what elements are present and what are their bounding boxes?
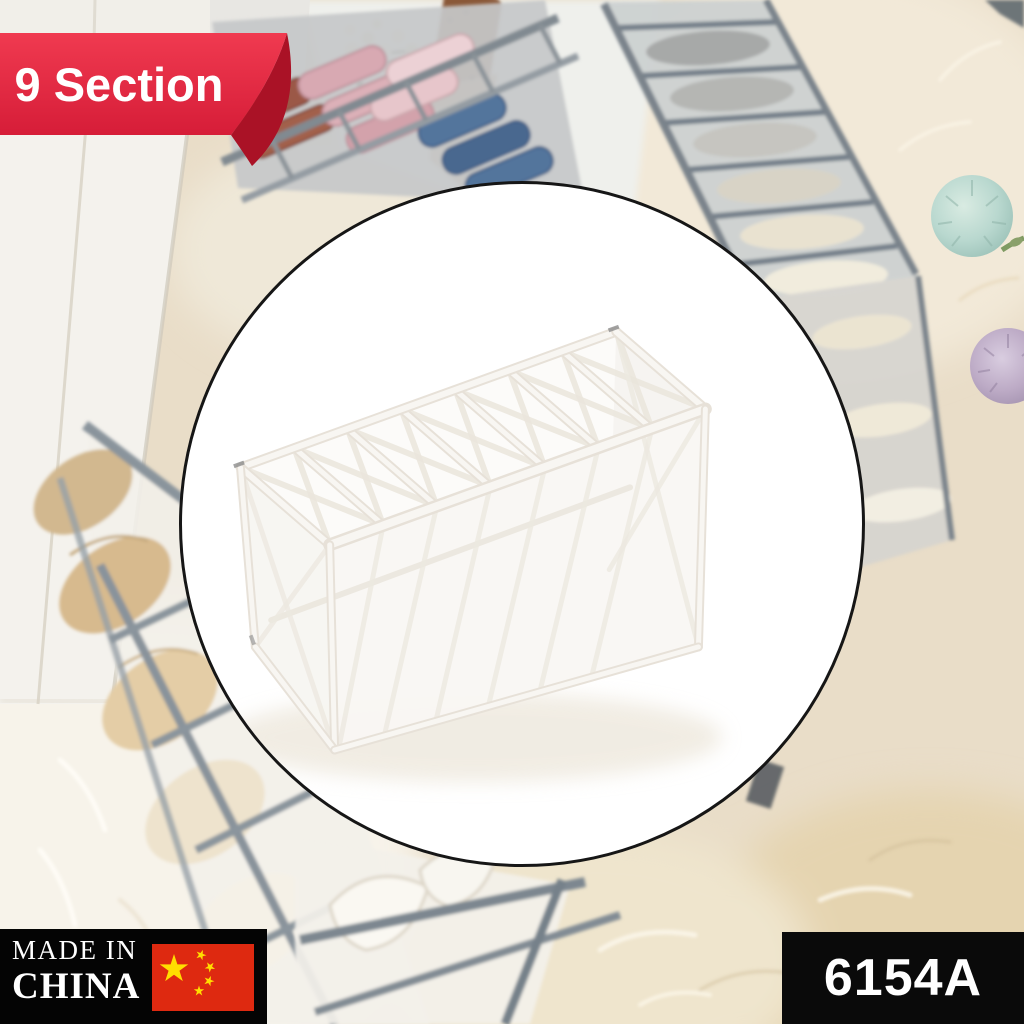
origin-text: MADE IN CHINA (12, 935, 140, 1009)
origin-badge: MADE IN CHINA (0, 929, 267, 1024)
mesh-organizer-product (182, 184, 862, 864)
origin-line1: MADE IN (12, 935, 140, 966)
product-image: 9 Section MADE IN CHINA 6154A (0, 0, 1024, 1024)
sku-badge: 6154A (782, 932, 1024, 1024)
section-count-label: 9 Section (15, 58, 224, 111)
china-flag-icon (152, 944, 254, 1011)
origin-line2: CHINA (12, 966, 140, 1009)
sku-label: 6154A (824, 948, 982, 1008)
section-count-badge: 9 Section (0, 0, 320, 200)
product-inset-circle (179, 181, 865, 867)
